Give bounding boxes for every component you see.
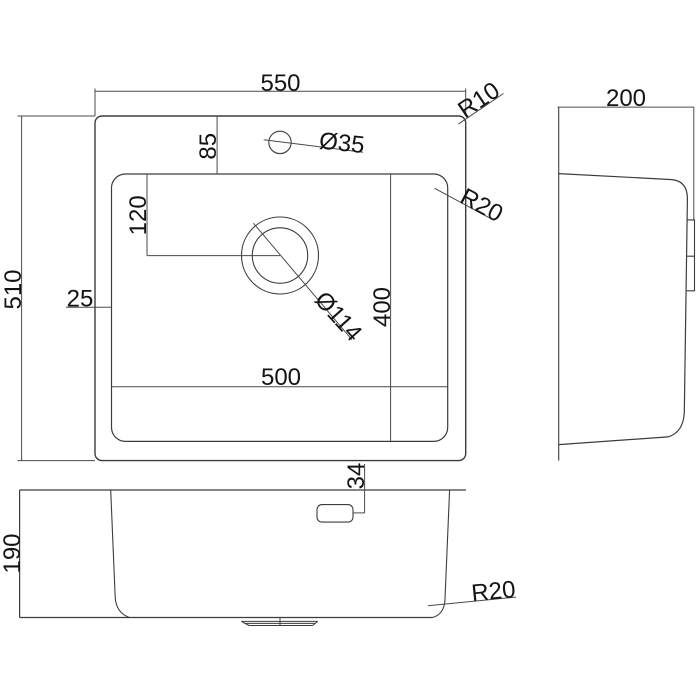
svg-text:190: 190 — [0, 533, 26, 573]
svg-text:R20: R20 — [456, 183, 508, 228]
svg-text:R20: R20 — [470, 576, 516, 607]
svg-text:200: 200 — [606, 85, 646, 112]
svg-text:550: 550 — [260, 70, 300, 97]
svg-text:120: 120 — [125, 195, 152, 235]
svg-text:34: 34 — [343, 463, 370, 490]
svg-text:500: 500 — [261, 364, 301, 391]
svg-text:85: 85 — [195, 133, 222, 160]
svg-text:Ø114: Ø114 — [309, 286, 367, 346]
svg-text:Ø35: Ø35 — [318, 128, 366, 160]
svg-text:25: 25 — [67, 286, 94, 313]
svg-text:400: 400 — [369, 287, 396, 327]
svg-text:510: 510 — [0, 269, 27, 309]
